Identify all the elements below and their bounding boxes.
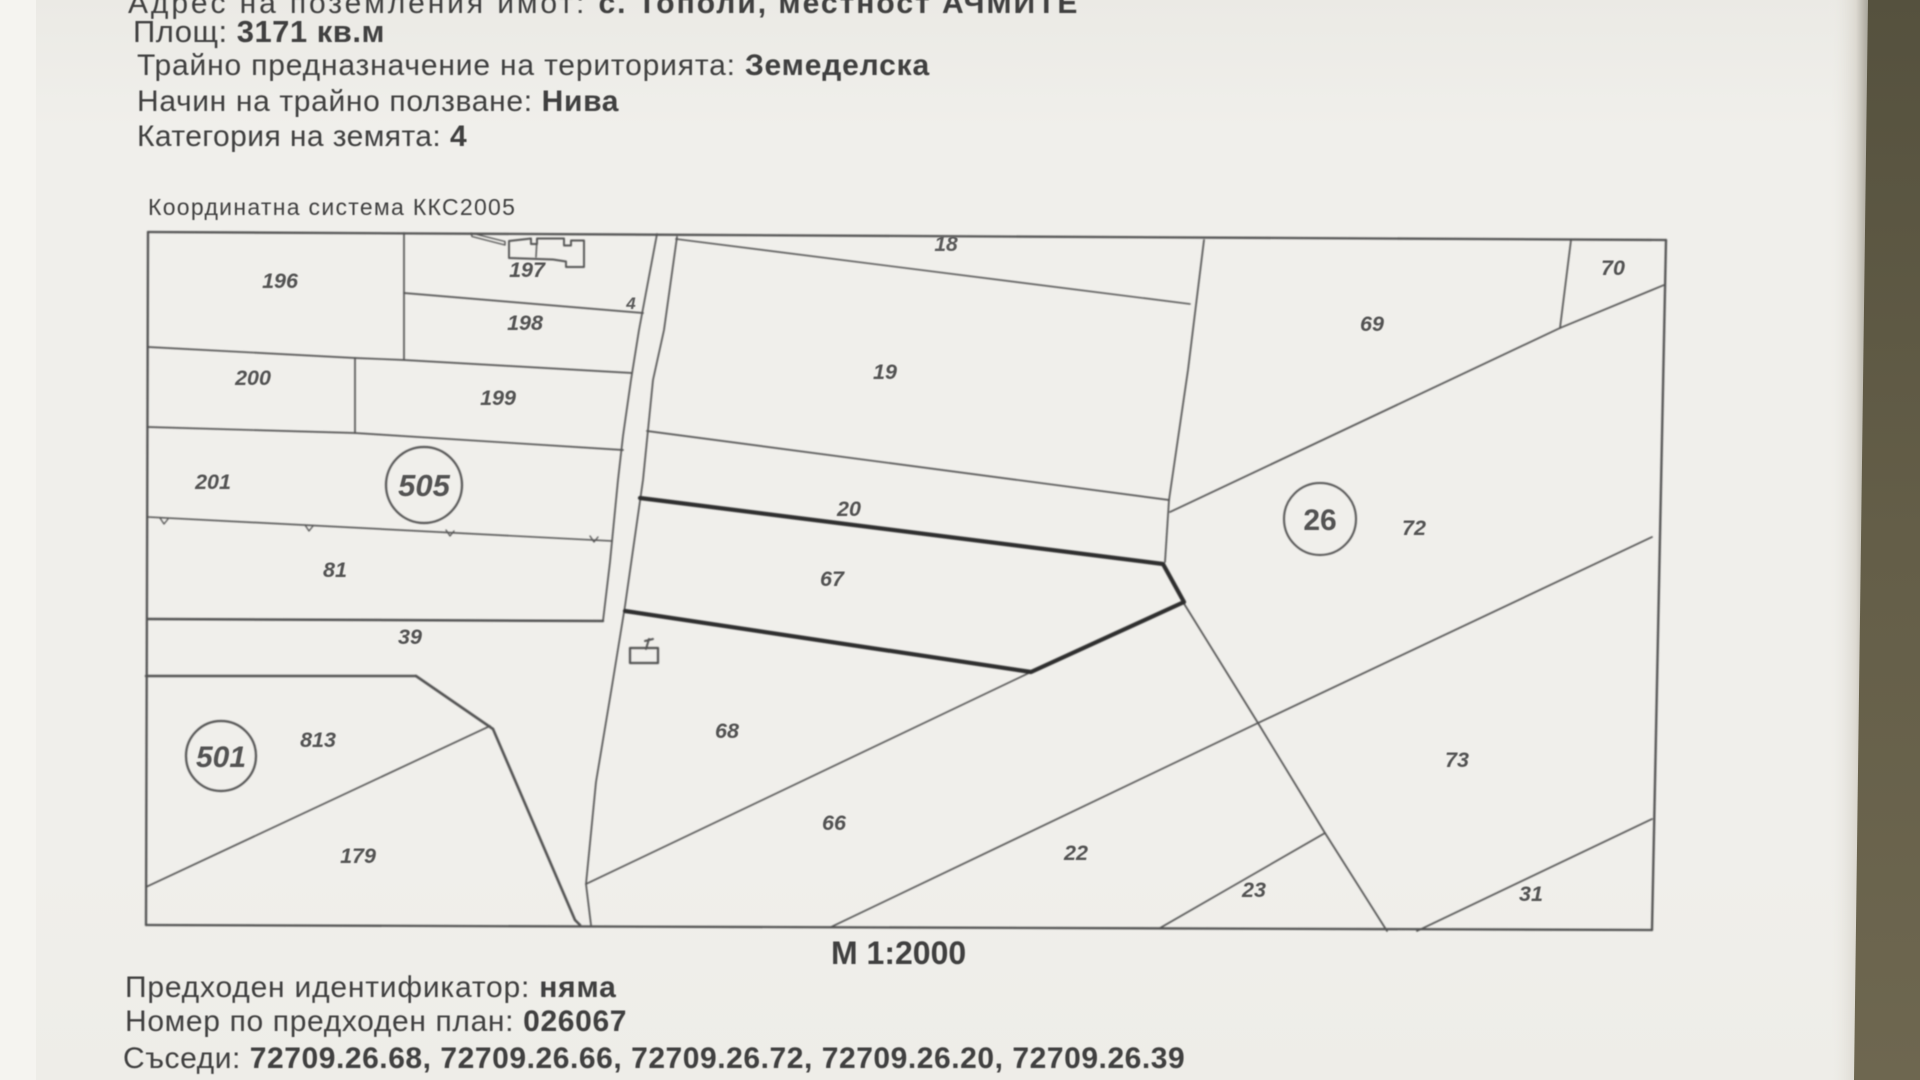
svg-text:813: 813	[300, 728, 336, 752]
svg-text:66: 66	[822, 811, 847, 835]
svg-text:67: 67	[820, 567, 845, 591]
svg-text:201: 201	[194, 470, 231, 494]
svg-text:200: 200	[234, 366, 271, 390]
svg-text:199: 199	[480, 386, 516, 410]
svg-text:31: 31	[1519, 882, 1543, 906]
svg-text:72: 72	[1402, 516, 1426, 540]
svg-text:Съседи: 72709.26.68, 72709.26.: Съседи: 72709.26.68, 72709.26.66, 72709.…	[123, 1042, 1185, 1075]
svg-text:198: 198	[507, 311, 543, 335]
svg-text:М 1:2000: М 1:2000	[831, 935, 966, 971]
svg-text:70: 70	[1601, 256, 1625, 280]
svg-text:69: 69	[1360, 312, 1384, 336]
svg-text:23: 23	[1241, 878, 1266, 902]
svg-text:501: 501	[196, 741, 246, 774]
svg-text:Площ: 3171 кв.м: Площ: 3171 кв.м	[133, 14, 385, 49]
svg-text:Категория на земята: 4: Категория на земята: 4	[137, 120, 467, 153]
svg-text:Начин на трайно ползване: Нива: Начин на трайно ползване: Нива	[137, 85, 619, 118]
svg-text:197: 197	[509, 258, 546, 282]
svg-text:505: 505	[398, 468, 450, 503]
svg-text:179: 179	[340, 844, 376, 868]
svg-text:Номер по предходен план: 02606: Номер по предходен план: 026067	[125, 1005, 627, 1038]
svg-text:73: 73	[1445, 748, 1469, 772]
svg-text:68: 68	[715, 719, 739, 743]
svg-text:20: 20	[836, 497, 861, 521]
svg-text:Координатна система ККС2005: Координатна система ККС2005	[148, 194, 516, 220]
svg-text:196: 196	[262, 269, 299, 293]
svg-text:39: 39	[398, 625, 422, 649]
svg-text:18: 18	[934, 233, 958, 256]
svg-text:81: 81	[323, 558, 347, 582]
svg-text:26: 26	[1303, 504, 1336, 537]
svg-text:19: 19	[873, 360, 897, 384]
svg-text:4: 4	[625, 294, 636, 313]
svg-text:22: 22	[1063, 841, 1088, 865]
svg-text:Трайно предназначение на терит: Трайно предназначение на територията: Зе…	[137, 49, 930, 82]
svg-text:Предходен идентификатор: няма: Предходен идентификатор: няма	[125, 971, 617, 1004]
